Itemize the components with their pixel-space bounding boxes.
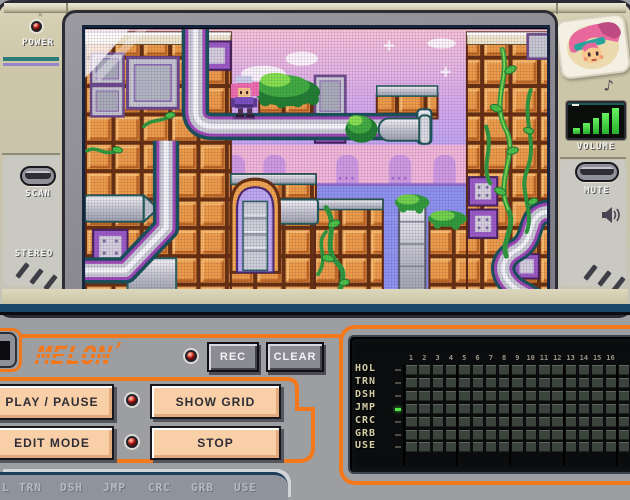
tracker-cell[interactable] <box>566 391 577 401</box>
tracker-column-number: 12 <box>550 354 564 362</box>
strip-label-dsh: DSH <box>60 481 83 494</box>
tracker-cell[interactable] <box>433 417 444 427</box>
tracker-cell[interactable] <box>473 430 484 440</box>
tracker-cell[interactable] <box>552 430 563 440</box>
tracker-column-number: 4 <box>444 354 458 362</box>
tracker-cell[interactable] <box>579 404 590 414</box>
tracker-cell[interactable] <box>459 417 470 427</box>
tracker-cell[interactable] <box>552 404 563 414</box>
tracker-row-label-trn: TRN <box>355 376 391 387</box>
teal-stripe <box>3 57 59 61</box>
tracker-cell[interactable] <box>619 430 630 440</box>
beat-marker-line <box>563 365 565 466</box>
volume-meter <box>566 101 626 140</box>
play-pause-button[interactable]: PLAY / PAUSE <box>0 384 114 420</box>
tracker-cell[interactable] <box>606 404 617 414</box>
tracker-cell[interactable] <box>512 365 523 375</box>
tracker-cell[interactable] <box>486 417 497 427</box>
tracker-cell[interactable] <box>566 378 577 388</box>
strip-label-jmp: JMP <box>103 481 126 494</box>
tracker-cell[interactable] <box>566 417 577 427</box>
tracker-cell[interactable] <box>446 430 457 440</box>
tracker-cell[interactable] <box>406 378 417 388</box>
tracker-cell[interactable] <box>406 430 417 440</box>
tracker-column-number: 3 <box>431 354 445 362</box>
tracker-cell[interactable] <box>539 442 550 452</box>
tracker-row-label-use: USE <box>355 440 391 451</box>
tracker-cell[interactable] <box>486 365 497 375</box>
speaker-icon <box>602 207 622 223</box>
tracker-cell[interactable] <box>512 430 523 440</box>
tracker-cell[interactable] <box>606 391 617 401</box>
panel-seam <box>2 153 60 155</box>
pipe-cylinder <box>379 115 431 143</box>
tracker-column-number: 6 <box>471 354 485 362</box>
tracker-column-number: 10 <box>524 354 538 362</box>
tracker-cell[interactable] <box>526 404 537 414</box>
tracker-cell[interactable] <box>459 365 470 375</box>
tracker-cell[interactable] <box>459 442 470 452</box>
shell-seam <box>556 3 558 14</box>
tracker-cell[interactable] <box>619 365 630 375</box>
clear-button[interactable]: CLEAR <box>266 342 324 372</box>
tracker-indicator <box>395 395 401 397</box>
tracker-screen[interactable]: HOLTRNDSHJMPCRCGRBUSE 123456789101112131… <box>348 335 630 474</box>
tracker-cell[interactable] <box>486 430 497 440</box>
tracker-active-indicator <box>395 408 401 411</box>
scan-label: SCAN <box>14 189 62 199</box>
purple-stripe <box>3 63 59 66</box>
tracker-cell[interactable] <box>579 391 590 401</box>
screw-mark-icon: ✕ <box>38 10 43 19</box>
tracker-cell[interactable] <box>419 404 430 414</box>
tracker-cell[interactable] <box>406 417 417 427</box>
tracker-cell[interactable] <box>592 378 603 388</box>
tracker-cell[interactable] <box>579 378 590 388</box>
volume-bar <box>602 113 609 134</box>
tracker-cell[interactable] <box>419 430 430 440</box>
game-screen[interactable] <box>82 25 550 297</box>
tracker-cell[interactable] <box>486 378 497 388</box>
app: ✕ POWER SCAN STEREO ♪ VOLUME MUTE <box>0 0 630 500</box>
tracker-cell[interactable] <box>592 417 603 427</box>
game-scene <box>85 28 550 297</box>
logo-slat <box>32 352 172 354</box>
volume-bar <box>593 118 600 134</box>
tracker-cell[interactable] <box>579 417 590 427</box>
tracker-cell[interactable] <box>486 404 497 414</box>
tracker-cell[interactable] <box>606 365 617 375</box>
tracker-cell[interactable] <box>512 378 523 388</box>
volume-bar <box>612 108 619 134</box>
tracker-cell[interactable] <box>592 391 603 401</box>
tracker-cell[interactable] <box>606 417 617 427</box>
scan-button[interactable] <box>20 166 56 186</box>
tracker-cell[interactable] <box>512 404 523 414</box>
tracker-row-label-grb: GRB <box>355 428 391 439</box>
tracker-cell[interactable] <box>446 378 457 388</box>
tracker-cell[interactable] <box>566 404 577 414</box>
stereo-label: STEREO <box>8 249 60 259</box>
beat-marker-line <box>456 365 458 466</box>
tracker-cell[interactable] <box>473 365 484 375</box>
tracker-cell[interactable] <box>512 417 523 427</box>
tracker-cell[interactable] <box>566 442 577 452</box>
tracker-row-label-jmp: JMP <box>355 402 391 413</box>
knob-center <box>0 341 10 360</box>
volume-meter-tick <box>572 104 579 106</box>
console-navy-band <box>0 304 630 315</box>
tracker-cell[interactable] <box>526 430 537 440</box>
tracker-cell[interactable] <box>552 378 563 388</box>
tracker-cell[interactable] <box>486 391 497 401</box>
tracker-cell[interactable] <box>499 391 510 401</box>
tracker-cell[interactable] <box>406 365 417 375</box>
tracker-column-number: 11 <box>537 354 551 362</box>
tracker-cell[interactable] <box>499 378 510 388</box>
strip-label-grb: GRB <box>191 481 214 494</box>
tracker-cell[interactable] <box>499 404 510 414</box>
tracker-cell[interactable] <box>579 365 590 375</box>
tracker-indicator <box>395 382 401 384</box>
tracker-cell[interactable] <box>446 404 457 414</box>
tracker-cell[interactable] <box>539 391 550 401</box>
strip-label-crc: CRC <box>148 481 171 494</box>
show-grid-button[interactable]: SHOW GRID <box>150 384 281 419</box>
mute-label: MUTE <box>573 186 621 196</box>
strip-label-use: USE <box>234 481 257 494</box>
edit-led <box>126 436 138 448</box>
app-logo: MELON’ <box>34 341 177 371</box>
tracker-column-number: 1 <box>404 354 418 362</box>
tracker-cell[interactable] <box>499 365 510 375</box>
tracker-cell[interactable] <box>473 391 484 401</box>
tracker-cell[interactable] <box>539 365 550 375</box>
tracker-cell[interactable] <box>526 391 537 401</box>
tracker-cell[interactable] <box>499 430 510 440</box>
bottom-strip-panel: LTRNDSHJMPCRCGRBUSE <box>0 472 288 500</box>
strip-label-l: L <box>2 481 10 494</box>
tracker-cell[interactable] <box>526 365 537 375</box>
tracker-cell[interactable] <box>592 430 603 440</box>
tracker-column-number: 13 <box>564 354 578 362</box>
tracker-row-label-dsh: DSH <box>355 389 391 400</box>
tracker-column-number: 8 <box>497 354 511 362</box>
beat-marker-line <box>403 365 405 466</box>
tracker-cell[interactable] <box>446 442 457 452</box>
volume-label: VOLUME <box>564 142 628 152</box>
tracker-cell[interactable] <box>499 417 510 427</box>
panel-seam <box>560 157 626 159</box>
tracker-cell[interactable] <box>552 391 563 401</box>
edit-mode-button[interactable]: EDIT MODE <box>0 426 114 460</box>
tracker-cell[interactable] <box>579 430 590 440</box>
volume-bar <box>573 128 580 134</box>
tracker-cell[interactable] <box>473 404 484 414</box>
tracker-cell[interactable] <box>526 378 537 388</box>
tracker-cell[interactable] <box>459 430 470 440</box>
tracker-cell[interactable] <box>406 404 417 414</box>
tracker-indicator <box>395 369 401 371</box>
tracker-cell[interactable] <box>406 442 417 452</box>
power-led <box>31 21 42 32</box>
tracker-column-number: 9 <box>510 354 524 362</box>
tracker-column-number: 14 <box>577 354 591 362</box>
tracker-cell[interactable] <box>433 442 444 452</box>
tracker-cell[interactable] <box>433 404 444 414</box>
pillar <box>399 201 425 297</box>
tracker-row-label-crc: CRC <box>355 415 391 426</box>
tracker-column-number: 16 <box>604 354 618 362</box>
tracker-cell[interactable] <box>619 378 630 388</box>
logo-slat <box>32 358 172 360</box>
tracker-row-label-hol: HOL <box>355 363 391 374</box>
tracker-cell[interactable] <box>539 404 550 414</box>
tracker-cell[interactable] <box>619 404 630 414</box>
tracker-cell[interactable] <box>419 417 430 427</box>
tracker-cell[interactable] <box>473 378 484 388</box>
tracker-cell[interactable] <box>419 442 430 452</box>
tracker-cell[interactable] <box>433 430 444 440</box>
tracker-cell[interactable] <box>433 378 444 388</box>
tracker-cell[interactable] <box>566 365 577 375</box>
tracker-cell[interactable] <box>526 417 537 427</box>
tracker-column-number: 7 <box>484 354 498 362</box>
tracker-cell[interactable] <box>473 417 484 427</box>
tracker-cell[interactable] <box>539 430 550 440</box>
tracker-cell[interactable] <box>512 391 523 401</box>
tracker-cell[interactable] <box>526 442 537 452</box>
character-sticker <box>555 13 630 80</box>
rec-led <box>185 350 197 362</box>
tracker-cell[interactable] <box>606 430 617 440</box>
tracker-cell[interactable] <box>606 378 617 388</box>
tracker-cell[interactable] <box>433 391 444 401</box>
tracker-cell[interactable] <box>419 391 430 401</box>
tracker-cell[interactable] <box>539 417 550 427</box>
console-bottom-strip <box>2 289 628 304</box>
tracker-cell[interactable] <box>499 442 510 452</box>
orange-wire <box>20 334 341 338</box>
tracker-cell[interactable] <box>419 378 430 388</box>
beat-marker-line <box>616 365 618 466</box>
beat-marker-line <box>509 365 511 466</box>
tracker-cell[interactable] <box>406 391 417 401</box>
arch-doorway <box>231 179 280 272</box>
tracker-cell[interactable] <box>592 365 603 375</box>
rec-button[interactable]: REC <box>207 342 259 372</box>
tracker-cell[interactable] <box>459 391 470 401</box>
tracker-cell[interactable] <box>619 417 630 427</box>
tracker-cell[interactable] <box>459 378 470 388</box>
tracker-cell[interactable] <box>446 391 457 401</box>
tracker-cell[interactable] <box>446 417 457 427</box>
tracker-column-number: 15 <box>590 354 604 362</box>
tracker-cell[interactable] <box>619 391 630 401</box>
play-led <box>126 394 138 406</box>
tracker-cell[interactable] <box>419 365 430 375</box>
tracker-cell[interactable] <box>473 442 484 452</box>
strip-label-trn: TRN <box>19 481 42 494</box>
tracker-cell[interactable] <box>433 365 444 375</box>
tracker-column-number: 5 <box>457 354 471 362</box>
stop-button[interactable]: STOP <box>150 426 281 460</box>
tracker-cell[interactable] <box>459 404 470 414</box>
tracker-cell[interactable] <box>579 442 590 452</box>
tracker-cell[interactable] <box>486 442 497 452</box>
character-portrait-icon <box>557 15 629 78</box>
tracker-cell[interactable] <box>592 442 603 452</box>
tracker-indicator <box>395 446 401 448</box>
power-label: POWER <box>14 38 62 48</box>
mute-button[interactable] <box>575 162 619 182</box>
tracker-cell[interactable] <box>539 378 550 388</box>
volume-bar <box>583 123 590 134</box>
tracker-cell[interactable] <box>619 442 630 452</box>
tracker-cell[interactable] <box>552 442 563 452</box>
tracker-cell[interactable] <box>592 404 603 414</box>
tracker-column-number: 2 <box>417 354 431 362</box>
tracker-cell[interactable] <box>552 365 563 375</box>
tracker-cell[interactable] <box>552 417 563 427</box>
tracker-cell[interactable] <box>512 442 523 452</box>
tracker-cell[interactable] <box>606 442 617 452</box>
tracker-indicator <box>395 434 401 436</box>
tracker-cell[interactable] <box>446 365 457 375</box>
tracker-cell[interactable] <box>566 430 577 440</box>
tracker-indicator <box>395 421 401 423</box>
